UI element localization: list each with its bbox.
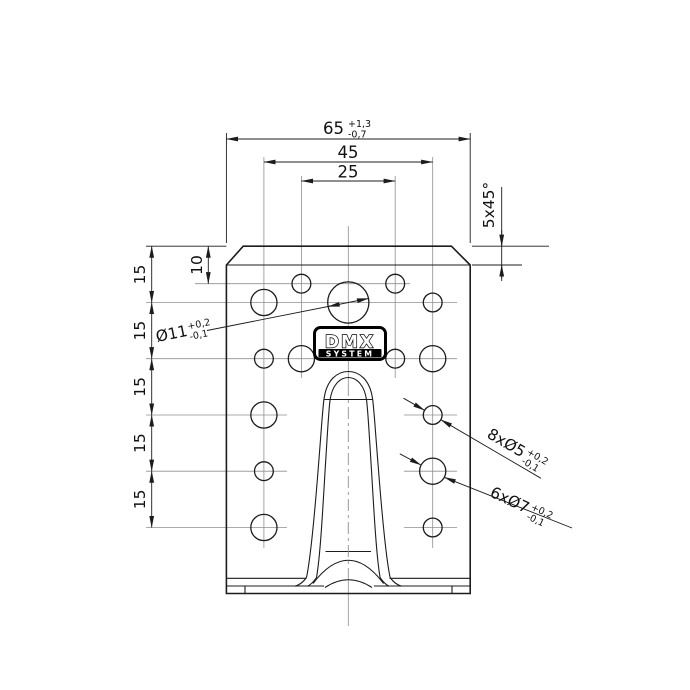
label-first-row-offset: 10	[188, 255, 206, 275]
label-d7-group: 6xØ7 +0,2 -0,1	[486, 483, 555, 531]
leader-d11	[207, 299, 369, 331]
dmx-logo: DMX SYSTEM	[315, 328, 386, 360]
technical-drawing: DMX SYSTEM 65 +1,3 -0,7 45 25 5x45° 10 1…	[0, 0, 690, 690]
label-chamfer: 5x45°	[480, 182, 498, 229]
label-total-width-tol-plus: +1,3	[348, 119, 371, 130]
label-total-width: 65	[323, 119, 344, 138]
label-row-spacing-2: 15	[131, 321, 149, 341]
label-d5: 8xØ5	[484, 425, 529, 461]
label-d11-group: Ø11 +0,2 -0,1	[154, 317, 213, 349]
label-d11-tol-minus: -0,1	[189, 328, 209, 342]
dim-row-chain	[146, 246, 226, 527]
drawing-svg: DMX SYSTEM 65 +1,3 -0,7 45 25 5x45° 10 1…	[0, 0, 690, 690]
label-outer-columns: 45	[338, 143, 359, 162]
label-d5-group: 8xØ5 +0,2 -0,1	[482, 425, 550, 477]
label-inner-columns: 25	[338, 163, 359, 182]
rib-embossment	[295, 372, 402, 588]
logo-text-system: SYSTEM	[326, 349, 374, 358]
label-row-spacing-4: 15	[131, 433, 149, 453]
label-row-spacing-5: 15	[131, 490, 149, 510]
label-d7: 6xØ7	[487, 483, 532, 517]
label-total-width-tol-minus: -0,7	[348, 130, 367, 141]
label-row-spacing-3: 15	[131, 377, 149, 397]
label-d11: Ø11	[154, 322, 189, 346]
dimension-labels: 65 +1,3 -0,7 45 25 5x45° 10 15 15 15 15 …	[131, 119, 555, 531]
label-row-spacing-1: 15	[131, 265, 149, 285]
